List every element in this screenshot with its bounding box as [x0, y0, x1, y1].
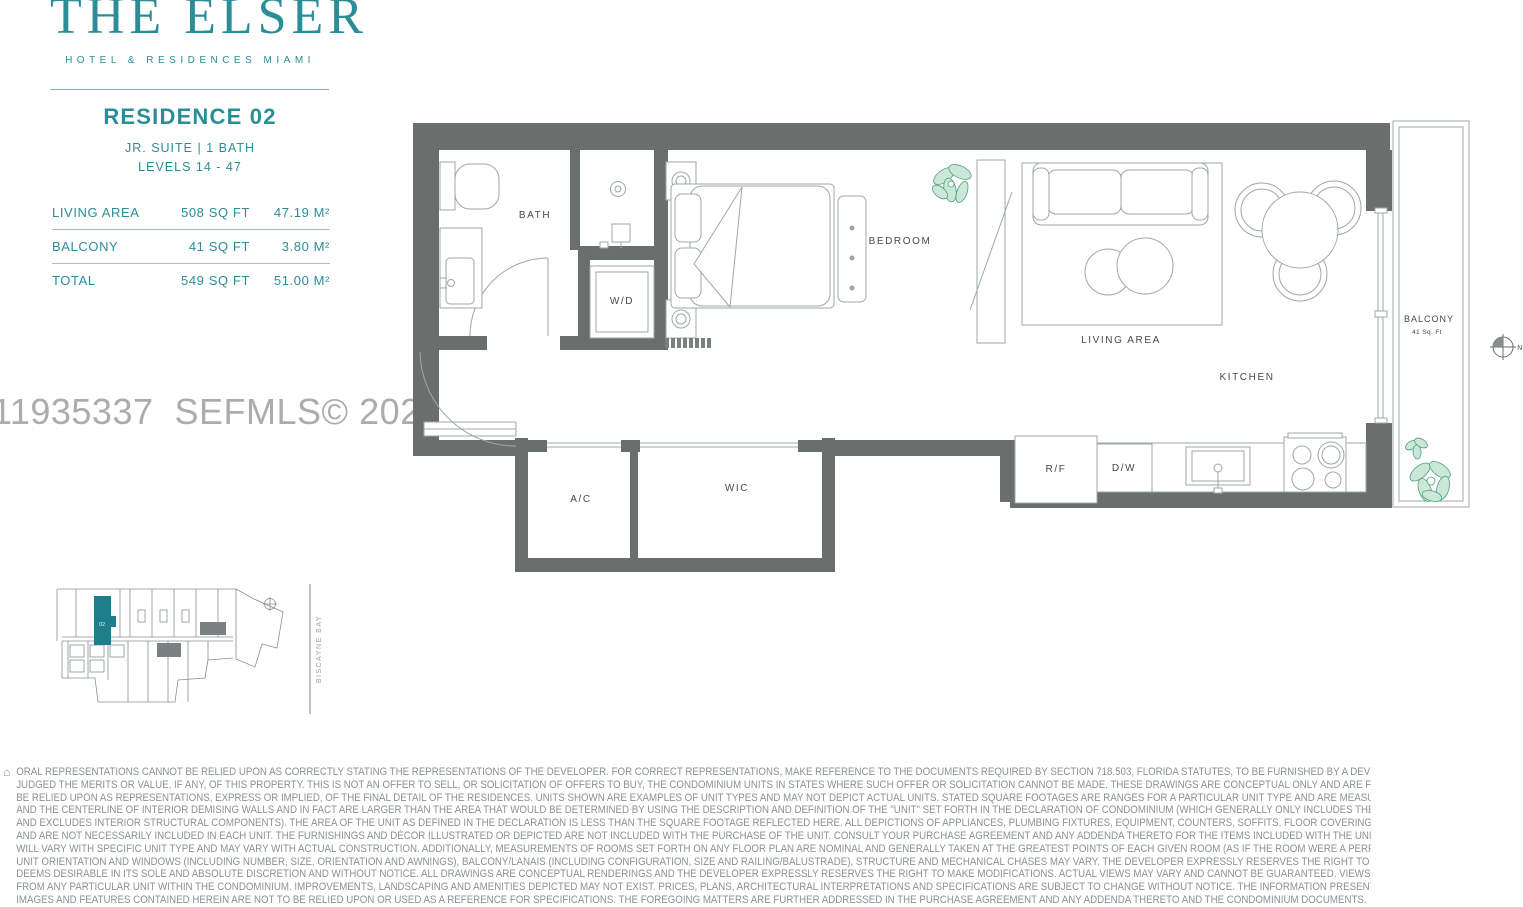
- disclaimer-line: AND EXCLUDES INTERIOR STRUCTURAL COMPONE…: [0, 817, 1371, 830]
- wardrobe: [970, 160, 1012, 343]
- area-sqft: 508 SQ FT: [158, 205, 250, 220]
- label-wd: W/D: [610, 296, 634, 307]
- brand-header: THE ELSER HOTEL & RESIDENCES MIAMI: [50, 0, 330, 66]
- keyplan: 02 BISCAYNE BAY: [48, 578, 333, 720]
- label-north: N: [1517, 345, 1522, 352]
- label-dw: D/W: [1112, 463, 1136, 474]
- residence-levels: LEVELS 14 - 47: [50, 160, 330, 174]
- label-living: LIVING AREA: [1081, 335, 1161, 346]
- plant-bedroom: [930, 161, 974, 204]
- keyplan-unit-02-highlight: [94, 596, 116, 645]
- area-row-balcony: BALCONY 41 SQ FT 3.80 M²: [52, 229, 330, 263]
- label-rf: R/F: [1046, 464, 1067, 475]
- disclaimer-line: DEEMS DESIRABLE IN ITS SOLE AND ABSOLUTE…: [0, 868, 1371, 881]
- label-balcony: BALCONY: [1404, 314, 1454, 324]
- brand-tagline: HOTEL & RESIDENCES MIAMI: [50, 55, 330, 66]
- disclaimer-line: WILL VARY WITH SPECIFIC UNIT TYPE AND MA…: [0, 843, 1371, 856]
- bay-label: BISCAYNE BAY: [316, 615, 323, 683]
- living-furniture: [1022, 163, 1222, 325]
- floorplan-sheet: THE ELSER HOTEL & RESIDENCES MIAMI RESID…: [0, 0, 1523, 907]
- bed: [666, 162, 866, 338]
- floorplan-drawing: BATH W/D BEDROOM LIVING AREA KITCHEN A/C…: [413, 110, 1523, 580]
- label-ac: A/C: [570, 494, 591, 505]
- area-sqm: 47.19 M²: [250, 205, 330, 220]
- disclaimer-line: JUDGED THE MERITS OR VALUE, IF ANY, OF T…: [0, 779, 1371, 792]
- keyplan-compass-icon: [263, 597, 277, 611]
- area-sqm: 3.80 M²: [250, 239, 330, 254]
- mls-watermark: 11935337 SEFMLS© 2025: [0, 391, 441, 433]
- area-label: BALCONY: [52, 239, 158, 254]
- area-label: LIVING AREA: [52, 205, 158, 220]
- area-sqft: 41 SQ FT: [158, 239, 250, 254]
- disclaimer-line: AND ARE NOT NECESSARILY INCLUDED IN EACH…: [0, 830, 1371, 843]
- label-kitchen: KITCHEN: [1219, 372, 1274, 383]
- plant-balcony: [1404, 436, 1453, 503]
- bath-fixtures: [440, 162, 499, 308]
- label-bedroom: BEDROOM: [869, 236, 932, 247]
- disclaimer-line: UNIT ORIENTATION AND WINDOWS (INCLUDING …: [0, 856, 1371, 869]
- area-label: TOTAL: [52, 273, 158, 288]
- keyplan-unit-label: 02: [99, 622, 105, 628]
- disclaimer-line: AND THE CENTERLINE OF INTERIOR DEMISING …: [0, 804, 1371, 817]
- label-balcony-area: 41 Sq. Ft: [1412, 329, 1442, 336]
- disclaimer-line: IMAGES AND FEATURES CONTAINED HEREIN ARE…: [0, 894, 1371, 907]
- kitchen-counter: [1015, 433, 1366, 503]
- disclaimer: ⌂ ORAL REPRESENTATIONS CANNOT BE RELIED …: [0, 766, 1523, 907]
- brand-logo: THE ELSER: [50, 0, 330, 46]
- area-sqft: 549 SQ FT: [158, 273, 250, 288]
- label-bath: BATH: [519, 210, 551, 221]
- area-table: LIVING AREA 508 SQ FT 47.19 M² BALCONY 4…: [52, 196, 330, 297]
- disclaimer-line: ORAL REPRESENTATIONS CANNOT BE RELIED UP…: [0, 766, 1371, 779]
- window-sill: [665, 338, 711, 348]
- label-wic: WIC: [725, 483, 749, 494]
- disclaimer-line: BE RELIED UPON AS REPRESENTATIONS, EXPRE…: [0, 792, 1371, 805]
- area-row-living: LIVING AREA 508 SQ FT 47.19 M²: [52, 196, 330, 229]
- dining-set: [1235, 181, 1361, 301]
- disclaimer-line: FROM ANY PARTICULAR UNIT WITHIN THE COND…: [0, 881, 1371, 894]
- area-sqm: 51.00 M²: [250, 273, 330, 288]
- residence-title: RESIDENCE 02: [50, 104, 330, 130]
- brand-divider: [50, 89, 329, 90]
- area-row-total: TOTAL 549 SQ FT 51.00 M²: [52, 263, 330, 297]
- shower: [600, 182, 630, 249]
- north-arrow-icon: [1490, 334, 1516, 360]
- residence-subtitle: JR. SUITE | 1 BATH: [50, 141, 330, 155]
- keyplan-filled-units: [157, 622, 226, 657]
